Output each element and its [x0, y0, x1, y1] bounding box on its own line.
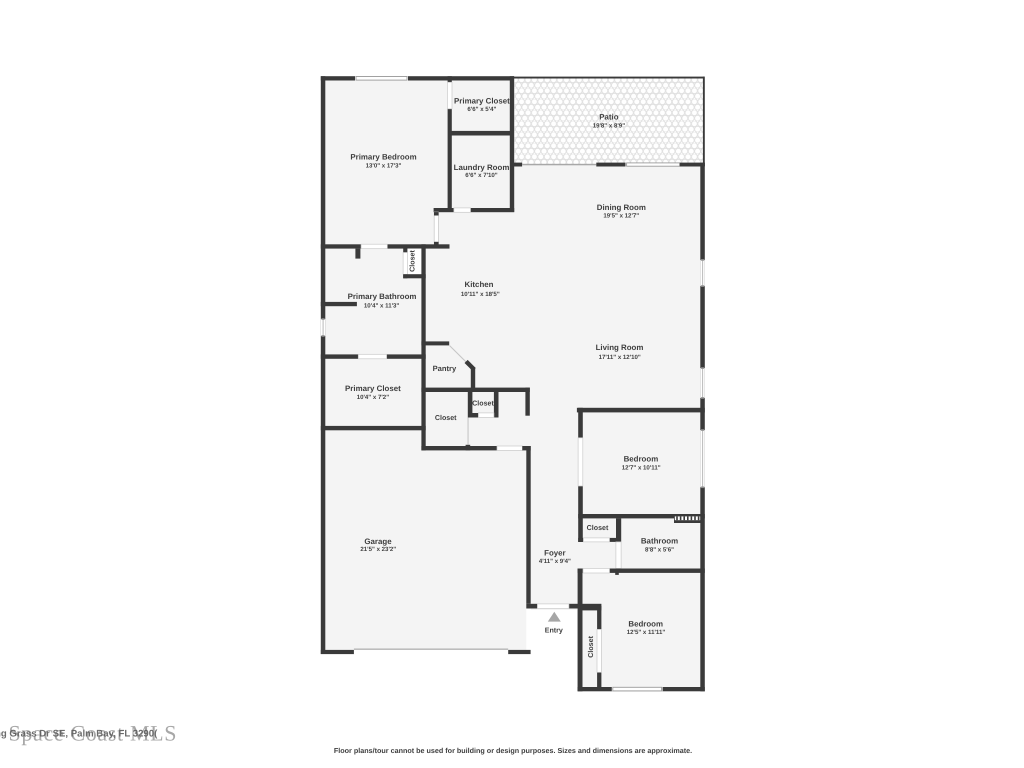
- svg-text:Garage: Garage: [364, 537, 392, 546]
- svg-text:4'11" x 9'4": 4'11" x 9'4": [539, 558, 571, 565]
- svg-text:Living Room: Living Room: [596, 343, 644, 352]
- svg-text:Primary Closet: Primary Closet: [454, 97, 510, 106]
- svg-text:8'8" x 5'6": 8'8" x 5'6": [645, 547, 674, 554]
- svg-text:6'6" x 5'4": 6'6" x 5'4": [467, 106, 496, 113]
- svg-text:17'11" x 12'10": 17'11" x 12'10": [599, 354, 641, 361]
- svg-text:12'7" x 10'11": 12'7" x 10'11": [622, 465, 661, 472]
- svg-text:Pantry: Pantry: [433, 364, 457, 373]
- svg-text:ng Grass Dr SE, Palm Bay, FL 3: ng Grass Dr SE, Palm Bay, FL 3290(: [0, 728, 158, 739]
- svg-text:Primary Bedroom: Primary Bedroom: [350, 152, 416, 161]
- svg-text:Closet: Closet: [587, 524, 609, 532]
- svg-text:Kitchen: Kitchen: [465, 280, 494, 289]
- svg-text:Patio: Patio: [599, 112, 618, 121]
- svg-text:Entry: Entry: [545, 627, 563, 635]
- svg-text:13'0" x 17'3": 13'0" x 17'3": [366, 163, 402, 170]
- svg-text:10'4" x 11'3": 10'4" x 11'3": [364, 302, 400, 309]
- svg-text:Dining Room: Dining Room: [597, 203, 646, 212]
- svg-text:Bathroom: Bathroom: [641, 536, 678, 545]
- svg-text:19'5" x 12'7": 19'5" x 12'7": [603, 213, 639, 220]
- svg-text:12'5" x 11'11": 12'5" x 11'11": [627, 629, 666, 636]
- svg-text:Laundry Room: Laundry Room: [454, 163, 510, 172]
- svg-text:Primary Bathroom: Primary Bathroom: [348, 292, 417, 301]
- svg-text:19'8" x 8'9": 19'8" x 8'9": [593, 123, 626, 130]
- svg-text:Foyer: Foyer: [544, 548, 566, 557]
- svg-text:Bedroom: Bedroom: [628, 620, 663, 629]
- svg-text:21'5" x 23'2": 21'5" x 23'2": [360, 546, 396, 553]
- svg-text:Bedroom: Bedroom: [624, 454, 659, 463]
- svg-text:10'4" x 7'2": 10'4" x 7'2": [357, 394, 390, 401]
- svg-text:Closet: Closet: [409, 250, 417, 272]
- svg-text:Closet: Closet: [587, 635, 595, 657]
- svg-text:6'6" x 7'10": 6'6" x 7'10": [465, 172, 498, 179]
- svg-text:Closet: Closet: [472, 400, 494, 408]
- svg-text:Closet: Closet: [435, 414, 457, 422]
- svg-text:Floor plans/tour cannot be use: Floor plans/tour cannot be used for buil…: [334, 746, 692, 755]
- svg-text:10'11" x 18'5": 10'11" x 18'5": [461, 291, 500, 298]
- svg-text:Primary Closet: Primary Closet: [345, 384, 401, 393]
